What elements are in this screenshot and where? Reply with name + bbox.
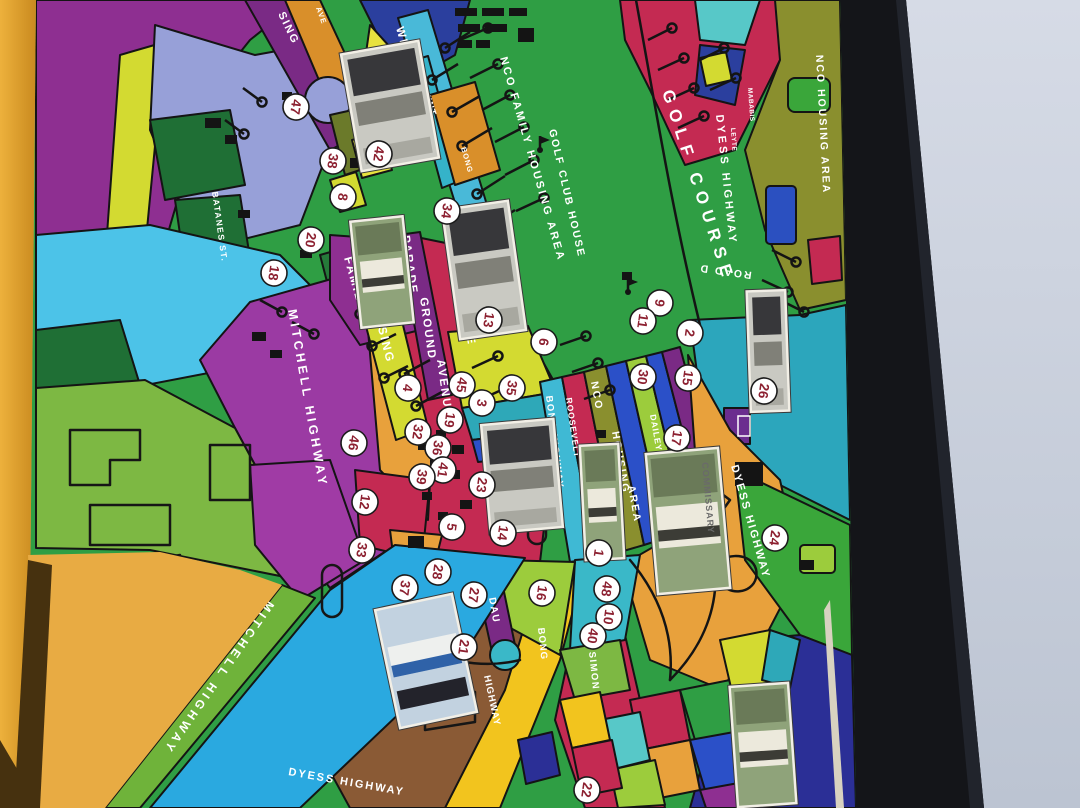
svg-text:12: 12 (356, 493, 373, 510)
svg-text:15: 15 (679, 369, 696, 386)
svg-text:33: 33 (353, 541, 370, 558)
svg-text:19: 19 (441, 411, 458, 428)
photo-inset-aerial-white-building (728, 681, 798, 808)
photo-inset-commissary: COMMISSARY (644, 446, 732, 596)
base-map: GOLF COURSENCO FAMILY HOUSING AREAGOLF C… (0, 0, 1080, 808)
svg-text:14: 14 (494, 524, 511, 541)
svg-text:48: 48 (598, 580, 615, 597)
framed-base-map-photo: GOLF COURSENCO FAMILY HOUSING AREAGOLF C… (0, 0, 1080, 808)
svg-text:42: 42 (370, 145, 387, 162)
svg-text:21: 21 (455, 638, 472, 655)
svg-text:26: 26 (755, 382, 772, 399)
svg-text:32: 32 (409, 423, 426, 440)
svg-text:24: 24 (766, 529, 783, 546)
svg-text:22: 22 (578, 781, 595, 798)
svg-text:28: 28 (429, 563, 446, 580)
svg-text:36: 36 (429, 439, 446, 456)
svg-text:37: 37 (396, 579, 413, 596)
svg-text:47: 47 (287, 98, 304, 115)
svg-text:11: 11 (634, 313, 651, 330)
svg-text:20: 20 (302, 231, 319, 248)
svg-text:34: 34 (438, 202, 455, 219)
svg-text:40: 40 (584, 627, 601, 644)
svg-text:10: 10 (600, 608, 617, 625)
svg-text:13: 13 (480, 311, 497, 328)
svg-text:39: 39 (413, 468, 430, 485)
svg-text:38: 38 (324, 152, 341, 169)
svg-text:23: 23 (473, 476, 490, 493)
svg-text:35: 35 (503, 379, 520, 396)
svg-text:45: 45 (453, 376, 470, 393)
svg-text:27: 27 (465, 586, 482, 603)
svg-text:30: 30 (634, 368, 651, 385)
svg-text:41: 41 (434, 461, 451, 478)
svg-text:16: 16 (533, 584, 550, 601)
svg-text:17: 17 (668, 429, 685, 446)
photo-inset-flag-building (348, 214, 415, 329)
svg-text:18: 18 (265, 264, 282, 281)
svg-text:46: 46 (345, 434, 362, 451)
